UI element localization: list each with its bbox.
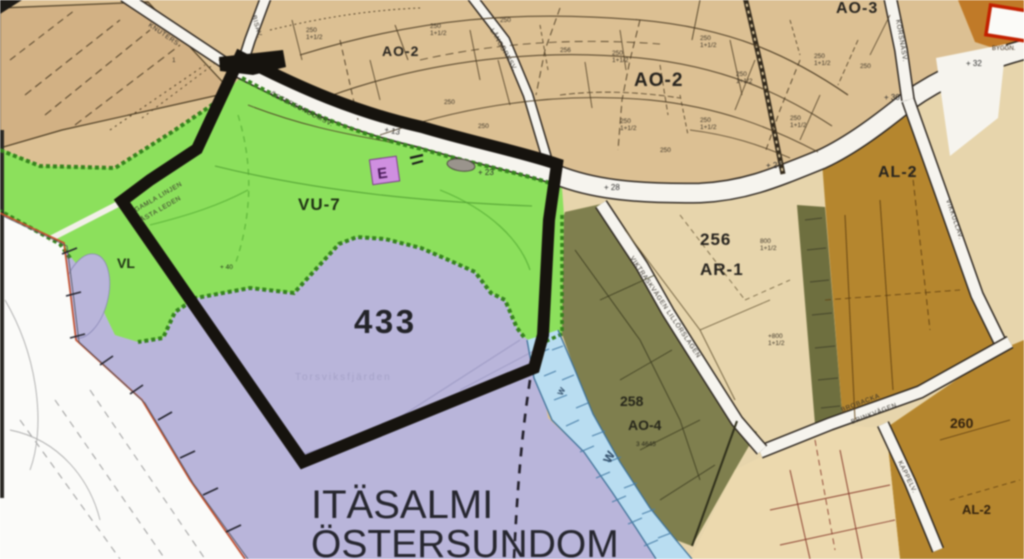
svg-text:Torsviksfjärden: Torsviksfjärden [295,372,392,383]
svg-text:1+1/2: 1+1/2 [700,42,717,49]
svg-text:250: 250 [860,63,871,70]
svg-text:+ 27: + 27 [766,161,782,170]
svg-text:+ 32: + 32 [966,59,982,68]
svg-text:250: 250 [478,123,489,130]
svg-text:250: 250 [700,117,711,124]
svg-text:AO-3: AO-3 [836,0,878,17]
svg-text:1+1/2: 1+1/2 [768,340,785,347]
svg-text:250: 250 [790,115,801,122]
svg-text:256: 256 [700,230,731,249]
svg-text:AL-2: AL-2 [878,164,918,181]
svg-text:1+1/2: 1+1/2 [760,245,777,252]
svg-text:AL-2: AL-2 [962,502,991,517]
svg-text:250: 250 [500,17,511,24]
svg-text:800: 800 [760,238,771,245]
svg-text:AO-2: AO-2 [382,43,419,59]
svg-text:1+1/2: 1+1/2 [790,122,807,129]
svg-text:250: 250 [700,35,711,42]
svg-text:VL: VL [117,255,135,271]
svg-text:ITÄSALMI: ITÄSALMI [311,483,493,527]
svg-text:3 4645: 3 4645 [636,441,656,448]
svg-text:1+1/2: 1+1/2 [700,124,717,131]
svg-text:250: 250 [620,118,631,125]
svg-text:BYGGN.: BYGGN. [992,46,1016,52]
svg-text:1+1/2: 1+1/2 [306,34,323,41]
svg-text:250: 250 [814,53,825,60]
svg-text:250: 250 [306,27,317,34]
svg-text:AR-1: AR-1 [700,260,744,279]
svg-text:1+1/2: 1+1/2 [814,60,831,67]
svg-text:250: 250 [612,50,623,57]
svg-text:AO-4: AO-4 [628,417,662,433]
svg-text:250: 250 [444,99,455,106]
svg-text:+ 23: + 23 [478,168,494,177]
svg-text:+ 28: + 28 [604,183,620,192]
svg-text:1: 1 [172,57,176,64]
svg-text:+ 30: + 30 [884,93,900,102]
svg-text:ÖSTERSUNDOM: ÖSTERSUNDOM [311,523,619,559]
svg-text:AO-2: AO-2 [634,70,683,91]
svg-text:1+1/2: 1+1/2 [736,78,753,85]
svg-text:1+1/2: 1+1/2 [612,57,629,64]
svg-text:+ 40: + 40 [220,264,233,271]
svg-text:260: 260 [950,415,974,431]
svg-text:VU-7: VU-7 [298,195,341,214]
svg-text:250: 250 [430,23,441,30]
svg-text:1+1/2: 1+1/2 [430,30,447,37]
svg-text:+800: +800 [768,333,783,340]
svg-text:250: 250 [736,71,747,78]
svg-text:1+1/2: 1+1/2 [620,125,637,132]
svg-text:433: 433 [354,303,417,340]
svg-text:250: 250 [660,147,671,154]
svg-text:258: 258 [620,393,644,409]
svg-text:256: 256 [560,47,571,54]
